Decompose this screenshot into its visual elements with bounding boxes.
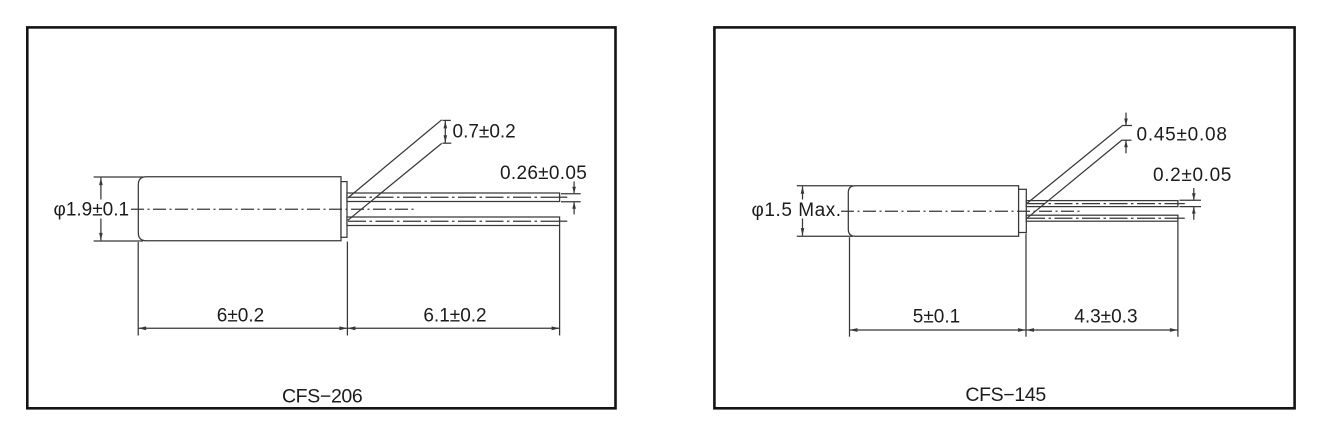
svg-text:0.2±0.05: 0.2±0.05 [1153,165,1232,186]
svg-text:0.26±0.05: 0.26±0.05 [500,163,587,184]
svg-text:0.7±0.2: 0.7±0.2 [453,122,516,143]
svg-text:CFS−206: CFS−206 [282,386,362,408]
svg-text:6±0.2: 6±0.2 [217,306,264,327]
svg-text:6.1±0.2: 6.1±0.2 [423,306,486,327]
svg-text:5±0.1: 5±0.1 [913,307,960,328]
svg-text:CFS−145: CFS−145 [965,384,1046,406]
svg-text:0.45±0.08: 0.45±0.08 [1137,124,1228,145]
svg-text:4.3±0.3: 4.3±0.3 [1074,307,1137,328]
svg-text:φ1.5 Max.: φ1.5 Max. [752,200,842,221]
svg-text:φ1.9±0.1: φ1.9±0.1 [54,199,130,220]
